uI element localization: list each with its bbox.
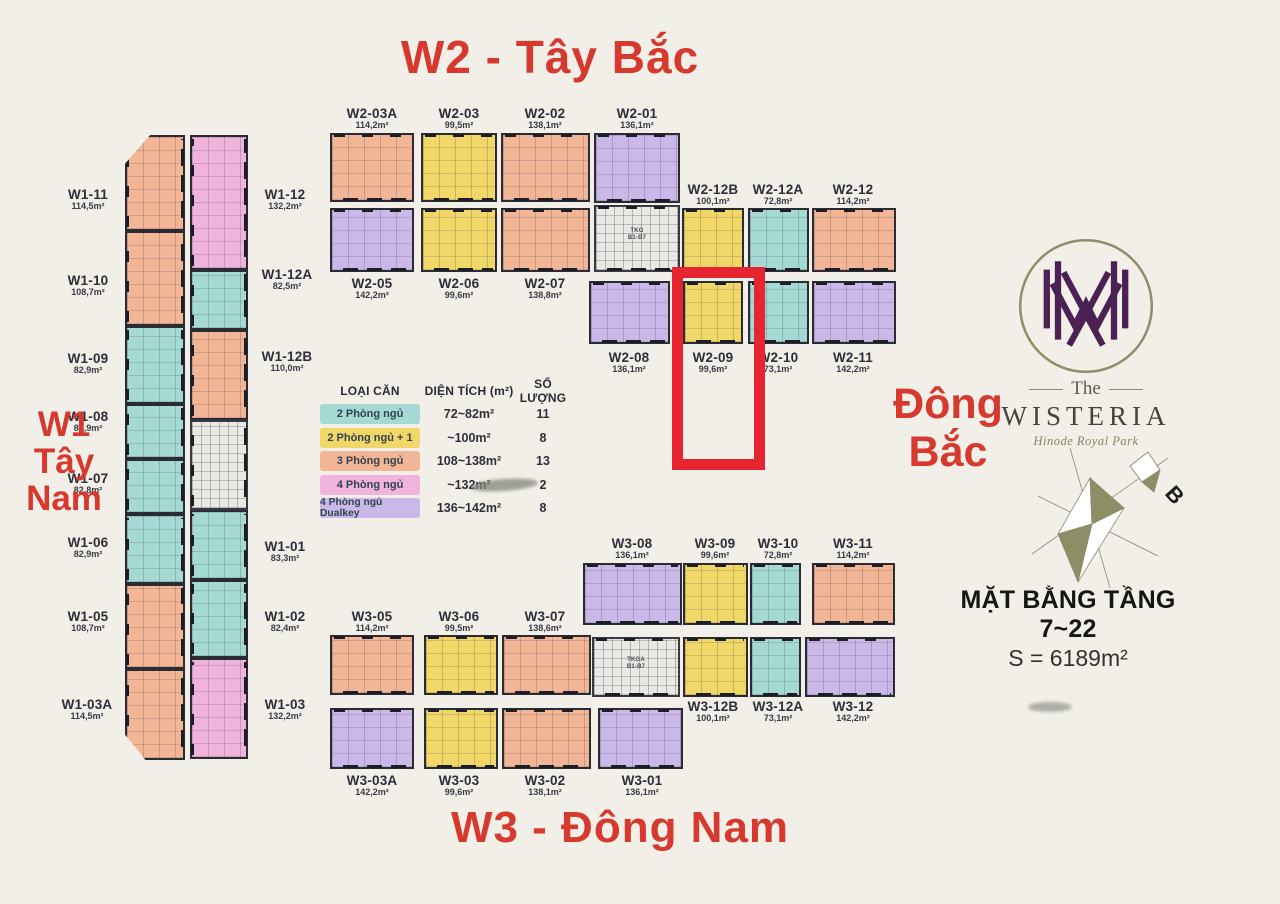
- unit-label-w3-05: W3-05114,2m²: [332, 610, 412, 634]
- unit-label-w3-12a: W3-12A73,1m²: [743, 700, 813, 724]
- unit-label-w1-09: W1-0982,9m²: [55, 352, 121, 376]
- unit-label-w2-08: W2-08136,1m²: [594, 351, 664, 375]
- unit-label-w2-12b: W2-12B100,1m²: [678, 183, 748, 207]
- title-w1-line3: Nam: [26, 479, 102, 518]
- unit-label-w3-08: W3-08136,1m²: [597, 537, 667, 561]
- unit-cell-w2-08: [589, 281, 670, 344]
- unit-label-w1-10: W1-10108,7m²: [55, 274, 121, 298]
- unit-cell-w3-09: [683, 563, 748, 625]
- unit-cell-w3-12a: [750, 637, 801, 697]
- title-dong-bac-line2: Bắc: [909, 428, 988, 476]
- unit-cell-w1-10: [125, 231, 185, 326]
- unit-cell-w3-03: [424, 708, 498, 769]
- title-w3-dong-nam: W3 - Đông Nam: [415, 803, 825, 853]
- unit-cell-w2-12a: [748, 208, 809, 272]
- unit-cell-w3-02: [502, 708, 591, 769]
- unit-cell-w2-11: [812, 281, 896, 344]
- legend-pill-2br1: 2 Phòng ngủ + 1: [320, 428, 420, 448]
- legend-range-2br1: ~100m²: [422, 431, 516, 445]
- unit-label-w1-03a: W1-03A114,5m²: [51, 698, 123, 722]
- unit-label-w1-11: W1-11114,5m²: [55, 188, 121, 212]
- unit-cell-w1-12: [190, 135, 248, 270]
- unit-label-w2-11: W2-11142,2m²: [818, 351, 888, 375]
- unit-cell-w3-06: [424, 635, 498, 695]
- unit-cell-w1-12b: [190, 330, 248, 420]
- logo-the-row: The: [1000, 378, 1172, 400]
- floor-plate-title: MẶT BẰNG TẦNG 7~22: [938, 586, 1198, 644]
- unit-label-w3-09: W3-0999,6m²: [680, 537, 750, 561]
- logo-the: The: [1071, 378, 1101, 400]
- legend-header-type: LOẠI CĂN: [320, 384, 420, 398]
- unit-cell-w3-08: [583, 563, 682, 625]
- legend-header-area: DIỆN TÍCH (m²): [422, 384, 516, 398]
- unit-cell-w3-01: [598, 708, 683, 769]
- legend-count-dualkey: 8: [518, 501, 568, 515]
- unit-cell-w2-06: [421, 208, 497, 272]
- unit-label-w3-03: W3-0399,6m²: [419, 774, 499, 798]
- legend-pill-dualkey: 4 Phòng ngủ Dualkey: [320, 498, 420, 518]
- unit-label-w1-12: W1-12132,2m²: [252, 188, 318, 212]
- title-w2-tay-bac: W2 - Tây Bắc: [330, 30, 770, 84]
- unit-cell-w2-01: [594, 133, 680, 203]
- logo-dash-right: [1109, 389, 1143, 390]
- unit-label-w2-03a: W2-03A114,2m²: [332, 107, 412, 131]
- unit-cell-w3-12: [805, 637, 895, 697]
- unit-cell-w1-03: [190, 658, 248, 759]
- unit-cell-w2-02: [501, 133, 590, 202]
- unit-cell-w2-03a: [330, 133, 414, 202]
- unit-cell-w1-02: [190, 580, 248, 658]
- legend-pill-2br: 2 Phòng ngủ: [320, 404, 420, 424]
- unit-label-w1-03: W1-03132,2m²: [252, 698, 318, 722]
- unit-label-w2-12: W2-12114,2m²: [818, 183, 888, 207]
- unit-cell-w2-03: [421, 133, 497, 202]
- compass-north-label: B: [1160, 481, 1186, 510]
- w1-elevator-core: [190, 420, 248, 510]
- legend-range-2br: 72~82m²: [422, 407, 516, 421]
- unit-label-w3-03a: W3-03A142,2m²: [332, 774, 412, 798]
- unit-cell-w2-12: [812, 208, 896, 272]
- unit-label-w3-06: W3-0699,5m²: [419, 610, 499, 634]
- unit-label-w2-06: W2-0699,6m²: [419, 277, 499, 301]
- legend-pill-3br: 3 Phòng ngủ: [320, 451, 420, 471]
- floor-plate-info: MẶT BẰNG TẦNG 7~22 S = 6189m²: [938, 586, 1198, 672]
- logo-dash-left: [1029, 389, 1063, 390]
- unit-cell-w1-03a: [125, 669, 185, 760]
- unit-label-w3-12b: W3-12B100,1m²: [678, 700, 748, 724]
- legend-count-2br1: 8: [518, 431, 568, 445]
- unit-label-w1-12a: W1-12A82,5m²: [252, 268, 322, 292]
- unit-cell-w3-05: [330, 635, 414, 695]
- wisteria-logo-mark: [1016, 236, 1156, 376]
- unit-label-w3-02: W3-02138,1m²: [505, 774, 585, 798]
- legend-count-2br: 11: [518, 407, 568, 421]
- logo-wordmark: WISTERIA: [1000, 401, 1172, 432]
- unit-cell-w3-07: [502, 635, 591, 695]
- unit-label-w2-02: W2-02138,1m²: [505, 107, 585, 131]
- w3-core-label: TKGAB1-B7: [621, 657, 651, 671]
- title-dong-bac-line1: Đông: [893, 380, 1003, 428]
- unit-cell-w1-06: [125, 514, 185, 584]
- unit-label-w3-10: W3-1072,8m²: [743, 537, 813, 561]
- legend-table: LOẠI CĂN DIỆN TÍCH (m²) SỐ LƯỢNG 2 Phòng…: [320, 380, 572, 519]
- title-w1-line2: Tây: [34, 442, 94, 481]
- floorplan-poster: W1-11114,5m² W1-10108,7m² W1-0982,9m² W1…: [0, 0, 1280, 904]
- legend-header-count: SỐ LƯỢNG: [518, 377, 568, 405]
- highlight-box-w2-09: [672, 267, 765, 470]
- unit-cell-w2-12b: [682, 208, 744, 272]
- legend-pill-4br: 4 Phòng ngủ: [320, 475, 420, 495]
- unit-cell-w1-07: [125, 459, 185, 514]
- unit-label-w3-12: W3-12142,2m²: [818, 700, 888, 724]
- unit-label-w2-03: W2-0399,5m²: [419, 107, 499, 131]
- unit-label-w1-05: W1-05108,7m²: [55, 610, 121, 634]
- unit-cell-w2-07: [501, 208, 590, 272]
- unit-cell-w3-11: [812, 563, 895, 625]
- unit-cell-w1-12a: [190, 270, 248, 330]
- title-w1-tay-nam: W1 Tây Nam: [8, 406, 120, 517]
- unit-label-w3-11: W3-11114,2m²: [818, 537, 888, 561]
- unit-label-w2-01: W2-01136,1m²: [597, 107, 677, 131]
- w2-core-label: TKGB1-B7: [622, 228, 652, 242]
- unit-label-w1-06: W1-0682,9m²: [55, 536, 121, 560]
- floor-plate-area: S = 6189m²: [938, 645, 1198, 672]
- unit-cell-w3-10: [750, 563, 801, 625]
- unit-cell-w2-05: [330, 208, 414, 272]
- smudge-mark-right: [1028, 702, 1072, 712]
- unit-cell-w1-09: [125, 326, 185, 404]
- unit-label-w2-07: W2-07138,8m²: [505, 277, 585, 301]
- unit-label-w2-05: W2-05142,2m²: [332, 277, 412, 301]
- title-dong-bac: Đông Bắc: [878, 380, 1018, 476]
- unit-label-w1-02: W1-0282,4m²: [252, 610, 318, 634]
- legend-range-3br: 108~138m²: [422, 454, 516, 468]
- title-w1-line1: W1: [38, 405, 91, 444]
- wisteria-logo: The WISTERIA Hinode Royal Park: [1000, 236, 1172, 449]
- legend-count-3br: 13: [518, 454, 568, 468]
- unit-cell-w1-05: [125, 584, 185, 669]
- unit-label-w3-07: W3-07138,6m²: [505, 610, 585, 634]
- compass-rose: B: [1018, 436, 1186, 594]
- unit-label-w1-01: W1-0183,3m²: [252, 540, 318, 564]
- unit-cell-w1-08: [125, 404, 185, 459]
- unit-label-w1-12b: W1-12B110,0m²: [252, 350, 322, 374]
- unit-label-w2-12a: W2-12A72,8m²: [743, 183, 813, 207]
- unit-label-w3-01: W3-01136,1m²: [602, 774, 682, 798]
- unit-cell-w3-12b: [683, 637, 748, 697]
- unit-cell-w3-03a: [330, 708, 414, 769]
- unit-cell-w1-01: [190, 510, 248, 580]
- legend-range-dualkey: 136~142m²: [422, 501, 516, 515]
- unit-cell-w1-11: [125, 135, 185, 231]
